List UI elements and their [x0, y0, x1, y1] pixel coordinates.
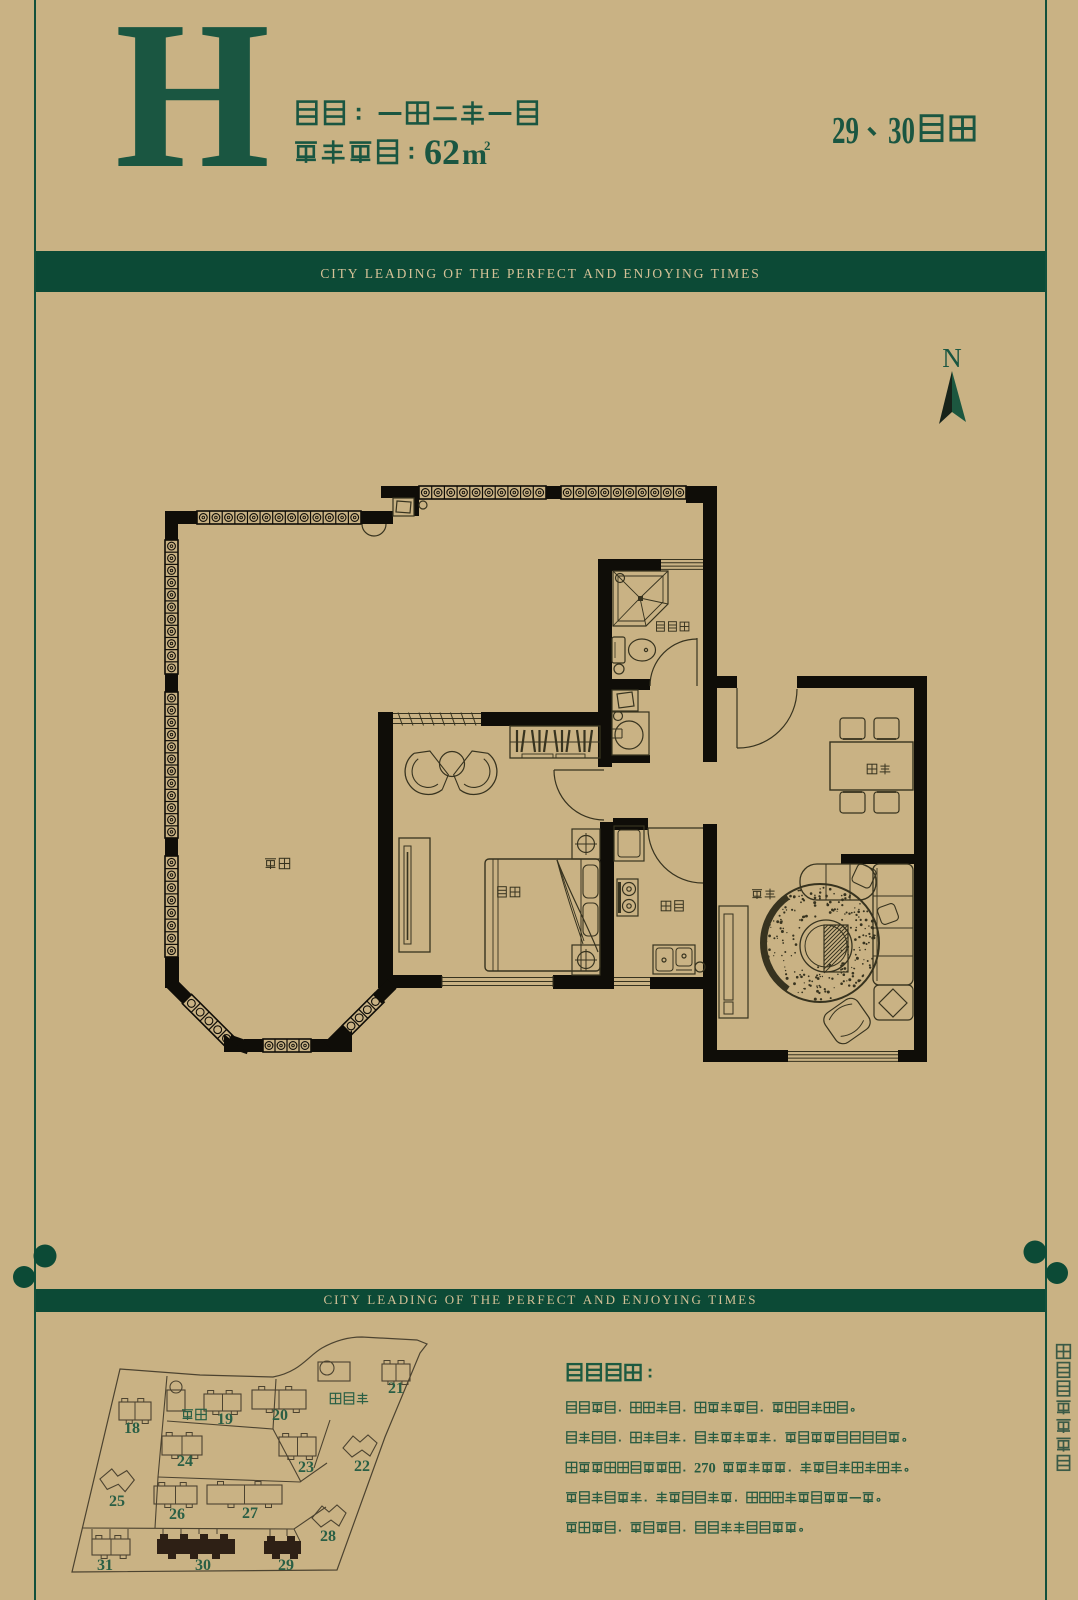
- svg-text:29: 29: [832, 110, 859, 152]
- svg-text:27: 27: [242, 1505, 258, 1522]
- svg-text:24: 24: [177, 1453, 193, 1470]
- svg-text:30: 30: [888, 110, 915, 152]
- svg-text:18: 18: [124, 1420, 140, 1437]
- svg-text:31: 31: [97, 1557, 113, 1574]
- svg-text:22: 22: [354, 1458, 370, 1475]
- svg-text:23: 23: [298, 1459, 314, 1476]
- svg-text:19: 19: [217, 1411, 233, 1428]
- svg-text:28: 28: [320, 1528, 336, 1545]
- svg-text:62: 62: [424, 132, 460, 172]
- svg-text:30: 30: [195, 1557, 211, 1574]
- svg-text:2: 2: [484, 138, 491, 153]
- svg-text:270: 270: [694, 1461, 716, 1477]
- svg-text:29: 29: [278, 1557, 294, 1574]
- svg-text:21: 21: [388, 1380, 404, 1397]
- svg-text:26: 26: [169, 1506, 185, 1523]
- svg-text:N: N: [942, 343, 962, 373]
- svg-text:20: 20: [272, 1407, 288, 1424]
- svg-text:25: 25: [109, 1493, 125, 1510]
